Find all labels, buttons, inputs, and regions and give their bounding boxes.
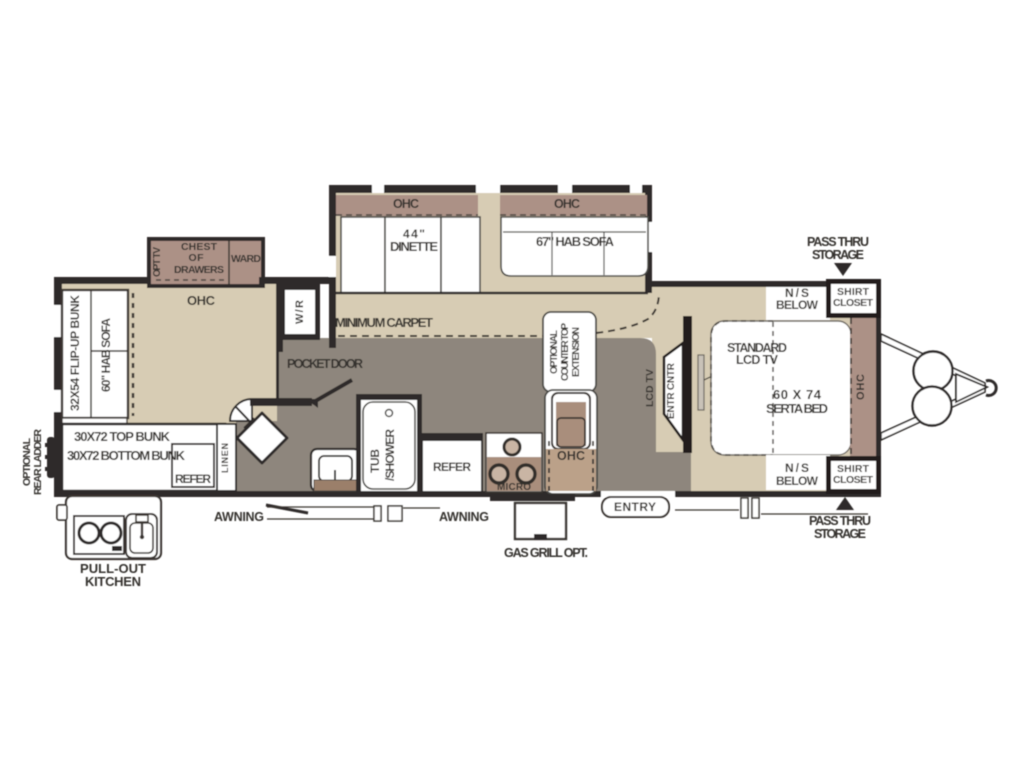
svg-text:60 X 74: 60 X 74 bbox=[773, 387, 822, 402]
svg-text:ENTRY: ENTRY bbox=[614, 500, 656, 514]
svg-text:PASS THRU: PASS THRU bbox=[807, 235, 869, 249]
svg-text:GAS GRILL OPT.: GAS GRILL OPT. bbox=[504, 546, 588, 560]
svg-text:30X72 TOP BUNK: 30X72 TOP BUNK bbox=[74, 429, 171, 444]
svg-text:OHC: OHC bbox=[554, 197, 580, 211]
svg-text:REFER: REFER bbox=[175, 472, 211, 486]
svg-text:ENTR CNTR: ENTR CNTR bbox=[666, 362, 677, 419]
svg-text:CLOSET: CLOSET bbox=[833, 297, 874, 309]
svg-text:BELOW: BELOW bbox=[776, 474, 819, 488]
svg-text:OF: OF bbox=[189, 252, 205, 264]
svg-text:OHC: OHC bbox=[393, 197, 419, 211]
svg-text:/SHOWER: /SHOWER bbox=[383, 429, 397, 481]
svg-text:CLOSET: CLOSET bbox=[833, 474, 874, 486]
svg-text:BELOW: BELOW bbox=[776, 298, 819, 312]
svg-text:OHC: OHC bbox=[187, 293, 216, 308]
svg-text:KITCHEN: KITCHEN bbox=[85, 574, 141, 589]
svg-text:30X72 BOTTOM BUNK: 30X72 BOTTOM BUNK bbox=[67, 448, 186, 463]
svg-text:DINETTE: DINETTE bbox=[390, 239, 438, 254]
svg-text:STORAGE: STORAGE bbox=[812, 248, 864, 262]
svg-text:POCKET DOOR: POCKET DOOR bbox=[287, 357, 363, 371]
svg-text:LINEN: LINEN bbox=[220, 443, 230, 473]
svg-text:EXTENSION: EXTENSION bbox=[571, 327, 582, 377]
svg-text:STORAGE: STORAGE bbox=[814, 527, 866, 541]
svg-text:TUB: TUB bbox=[368, 449, 382, 473]
svg-text:COUNTER TOP: COUNTER TOP bbox=[560, 323, 571, 381]
svg-text:32X54 FLIP-UP BUNK: 32X54 FLIP-UP BUNK bbox=[68, 295, 82, 411]
svg-text:WARD: WARD bbox=[231, 253, 261, 265]
svg-text:N/S: N/S bbox=[785, 461, 809, 475]
svg-text:OHC: OHC bbox=[557, 449, 585, 463]
svg-text:MINIMUM CARPET: MINIMUM CARPET bbox=[335, 315, 433, 330]
svg-text:LCD TV: LCD TV bbox=[736, 353, 779, 367]
svg-text:SERTA BED: SERTA BED bbox=[766, 401, 828, 416]
svg-text:OPTIONAL: OPTIONAL bbox=[549, 330, 560, 374]
svg-text:PASS THRU: PASS THRU bbox=[809, 514, 871, 528]
svg-text:REAR LADDER: REAR LADDER bbox=[32, 429, 44, 495]
svg-text:OHC: OHC bbox=[855, 374, 867, 400]
svg-text:60" HAB SOFA: 60" HAB SOFA bbox=[99, 318, 113, 392]
svg-text:LCD TV: LCD TV bbox=[644, 369, 656, 407]
svg-text:MICRO: MICRO bbox=[497, 482, 531, 493]
svg-text:67" HAB SOFA: 67" HAB SOFA bbox=[536, 234, 615, 249]
svg-text:OPT TV: OPT TV bbox=[152, 247, 163, 277]
svg-text:DRAWERS: DRAWERS bbox=[174, 264, 224, 276]
svg-text:AWNING: AWNING bbox=[214, 510, 264, 524]
svg-text:W/R: W/R bbox=[294, 300, 306, 324]
svg-text:REFER: REFER bbox=[433, 460, 471, 474]
svg-text:AWNING: AWNING bbox=[439, 510, 489, 524]
